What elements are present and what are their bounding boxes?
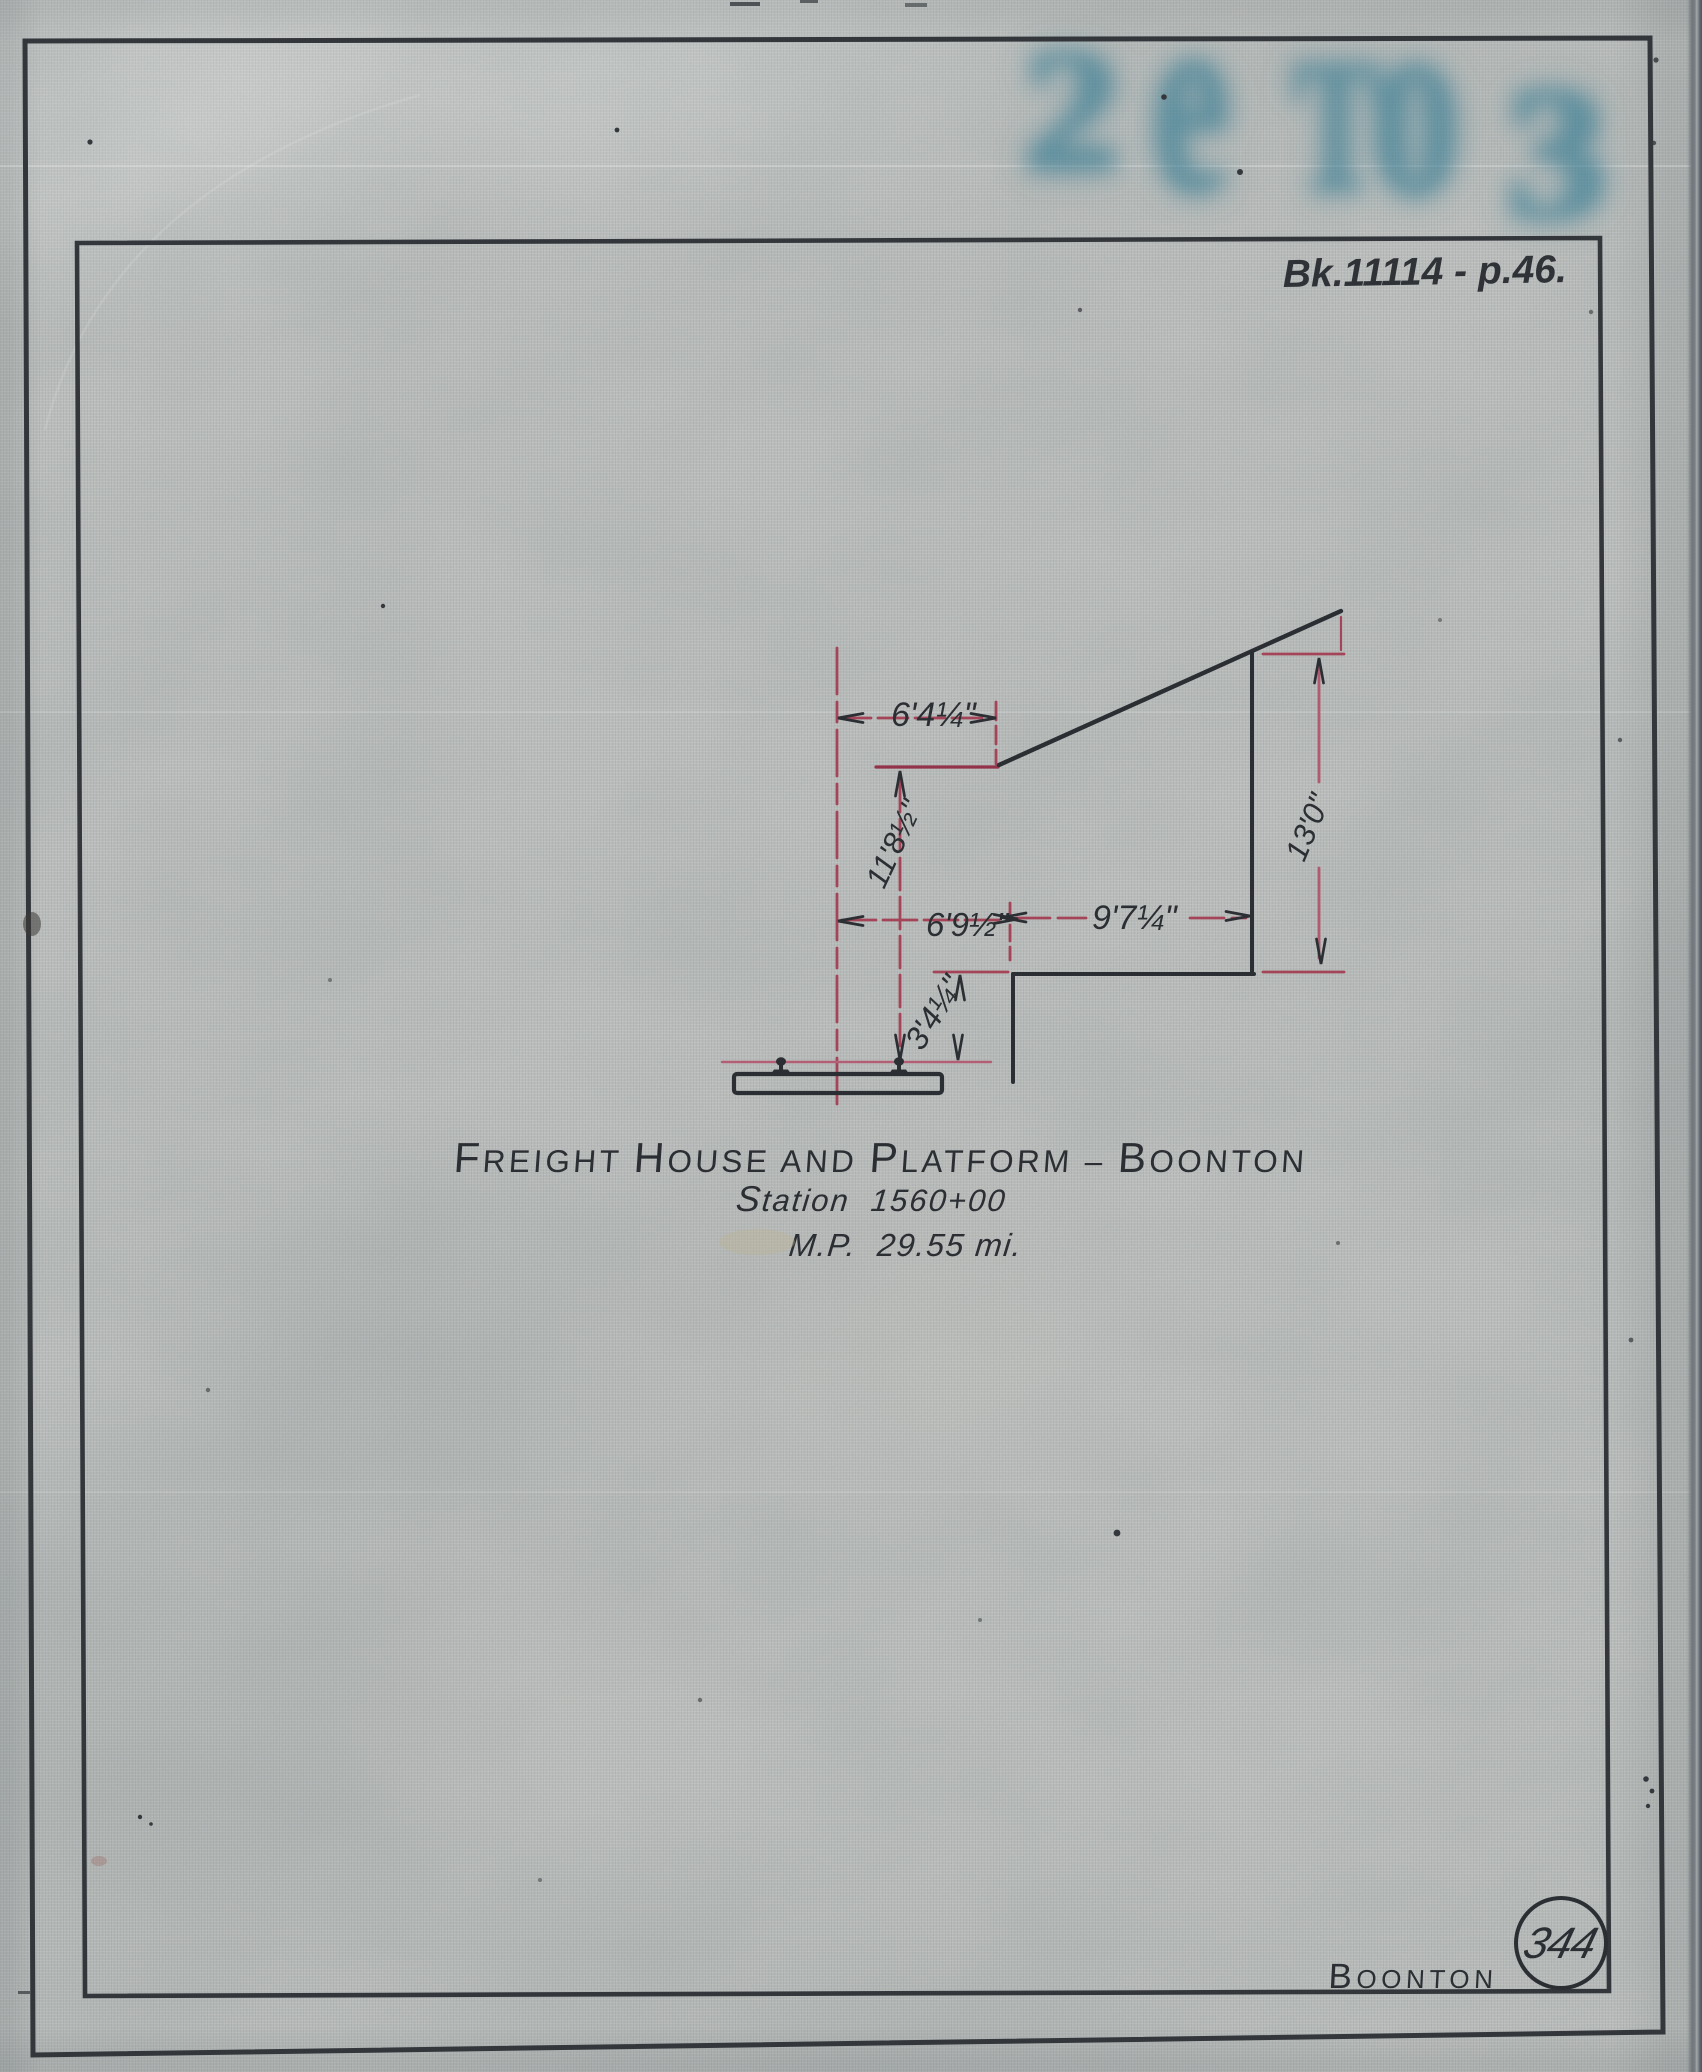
svg-text:M.P. 29.55 mi.: M.P. 29.55 mi.: [787, 1227, 1024, 1263]
svg-text:13'0": 13'0": [1278, 787, 1338, 866]
svg-text:BOONTON: BOONTON: [1328, 1957, 1499, 1996]
svg-text:Bk.11114 - p.46.: Bk.11114 - p.46.: [1282, 248, 1567, 296]
svg-text:FREIGHT HOUSE AND PLATFORM – B: FREIGHT HOUSE AND PLATFORM – BOONTON: [452, 1134, 1309, 1181]
svg-text:6'9½": 6'9½": [926, 906, 1010, 943]
svg-text:Station 1560+00: Station 1560+00: [734, 1178, 1009, 1219]
svg-text:344: 344: [1518, 1919, 1602, 1968]
svg-text:11'8½": 11'8½": [859, 793, 931, 893]
svg-text:6'4¼": 6'4¼": [891, 696, 978, 734]
svg-text:9'7¼": 9'7¼": [1092, 899, 1179, 937]
